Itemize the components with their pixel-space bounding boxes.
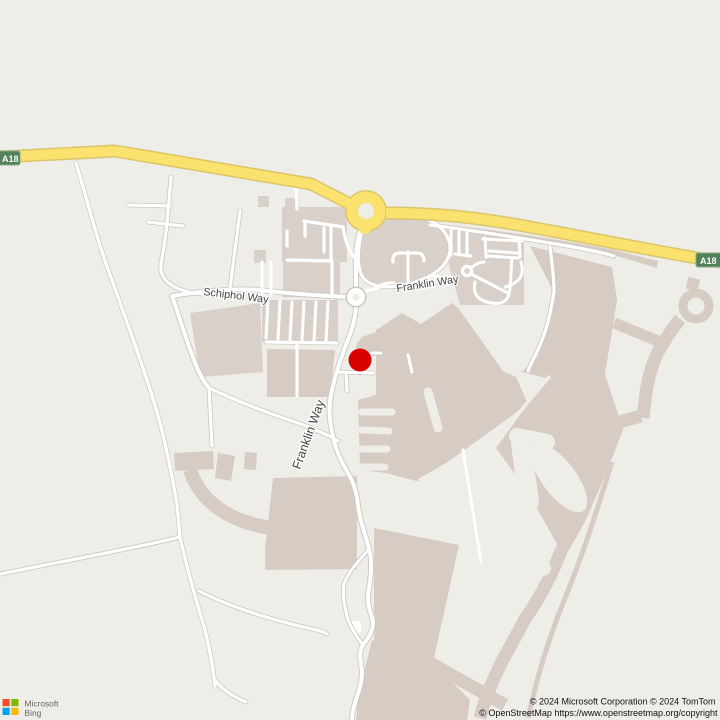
svg-text:Microsoft: Microsoft — [25, 699, 60, 709]
svg-text:Bing: Bing — [25, 708, 42, 718]
svg-text:© 2024 Microsoft Corporation ©: © 2024 Microsoft Corporation © 2024 TomT… — [530, 697, 716, 707]
svg-text:A18: A18 — [2, 154, 19, 164]
svg-text:© OpenStreetMap https://www.op: © OpenStreetMap https://www.openstreetma… — [479, 708, 718, 718]
svg-text:A18: A18 — [700, 256, 717, 266]
